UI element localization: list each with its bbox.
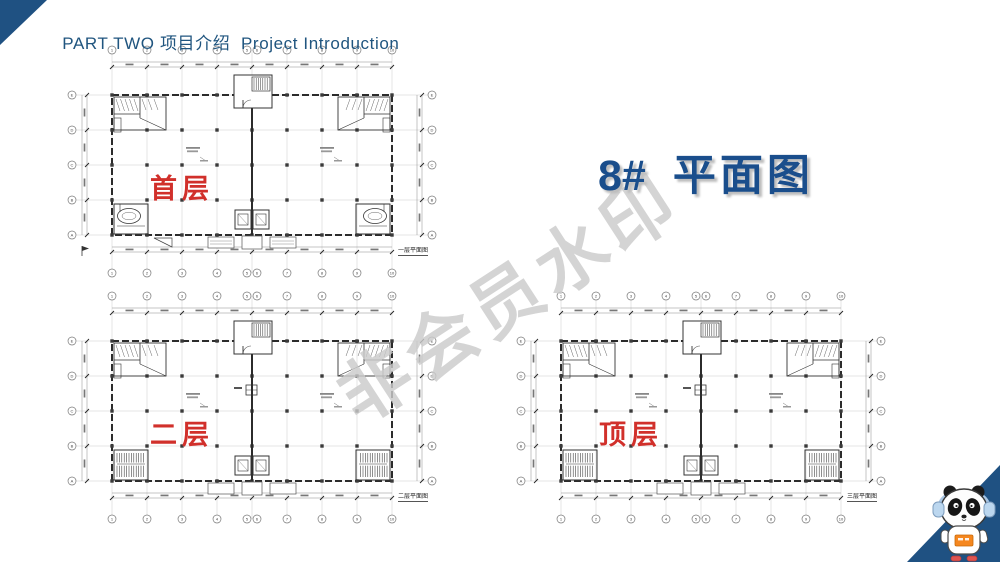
svg-text:E: E xyxy=(71,339,74,344)
svg-text:D: D xyxy=(880,374,883,379)
svg-text:D: D xyxy=(431,374,434,379)
svg-text:D: D xyxy=(71,128,74,133)
svg-text:10: 10 xyxy=(390,294,395,299)
floor-plan-top: 1122334456567788991010EEDDCCBBAA 顶层 三层平面… xyxy=(507,286,907,536)
svg-text:A: A xyxy=(71,233,74,238)
svg-text:E: E xyxy=(520,339,523,344)
svg-text:D: D xyxy=(520,374,523,379)
svg-text:A: A xyxy=(431,479,434,484)
svg-text:10: 10 xyxy=(839,294,844,299)
page-title: 8#平面图 xyxy=(598,141,814,203)
floor-label-second: 二层 xyxy=(150,413,214,452)
svg-text:D: D xyxy=(431,128,434,133)
slide: PART TWO 项目介绍 Project Introduction 非会员水印… xyxy=(0,0,1000,562)
svg-text:B: B xyxy=(71,444,74,449)
plan-caption-second: 二层平面图 xyxy=(398,494,428,502)
svg-text:E: E xyxy=(431,93,434,98)
svg-text:C: C xyxy=(71,409,74,414)
svg-text:D: D xyxy=(71,374,74,379)
floor-label-top: 顶层 xyxy=(599,413,663,452)
svg-text:C: C xyxy=(880,409,883,414)
title-text: 平面图 xyxy=(673,152,814,200)
plan-caption-ground: 一层平面图 xyxy=(398,248,428,256)
svg-text:E: E xyxy=(431,339,434,344)
svg-text:A: A xyxy=(880,479,883,484)
svg-text:B: B xyxy=(431,444,434,449)
svg-text:10: 10 xyxy=(839,517,844,522)
svg-text:10: 10 xyxy=(390,271,395,276)
svg-text:A: A xyxy=(520,479,523,484)
svg-text:B: B xyxy=(880,444,883,449)
plan-caption-top: 三层平面图 xyxy=(847,494,877,502)
svg-text:C: C xyxy=(431,163,434,168)
header-title: PART TWO 项目介绍 Project Introduction xyxy=(62,34,399,53)
floor-plan-second: 1122334456567788991010EEDDCCBBAA 二层 二层平面… xyxy=(58,286,458,536)
svg-text:E: E xyxy=(880,339,883,344)
corner-triangle-top-left xyxy=(0,0,47,45)
svg-text:C: C xyxy=(71,163,74,168)
slide-header: PART TWO 项目介绍 Project Introduction xyxy=(41,9,399,74)
svg-text:A: A xyxy=(431,233,434,238)
svg-text:B: B xyxy=(431,198,434,203)
title-building-number: 8# xyxy=(598,152,646,200)
panda-mascot-icon xyxy=(926,478,1000,562)
svg-text:E: E xyxy=(71,93,74,98)
svg-text:B: B xyxy=(520,444,523,449)
svg-text:C: C xyxy=(431,409,434,414)
svg-text:A: A xyxy=(71,479,74,484)
svg-text:10: 10 xyxy=(390,517,395,522)
svg-text:B: B xyxy=(71,198,74,203)
svg-text:C: C xyxy=(520,409,523,414)
floor-plan-ground: 1122334456567788991010EEDDCCBBAA 首层 一层平面… xyxy=(58,40,458,290)
floor-label-ground: 首层 xyxy=(150,167,214,206)
